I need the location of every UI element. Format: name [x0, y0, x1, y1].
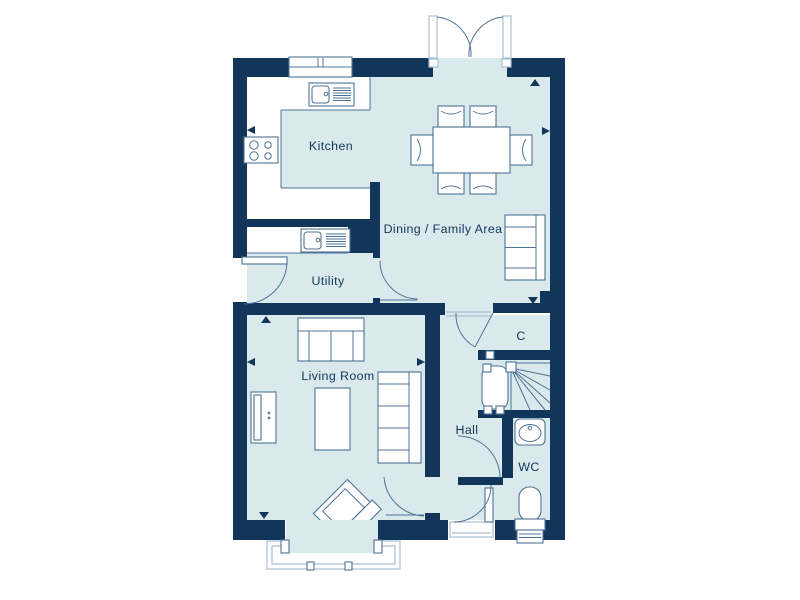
basin: [515, 419, 545, 445]
wall-stub-kitchen-dining: [370, 182, 380, 219]
room-label-living: Living Room: [301, 369, 374, 383]
kitchen-sink: [309, 83, 354, 106]
wall-bottom-mid: [378, 520, 448, 540]
coffee-table: [315, 388, 350, 450]
dining-chair: [438, 106, 464, 127]
wall-block-utility-dining: [348, 219, 380, 253]
hall-doorway-floor: [445, 303, 493, 315]
room-label-kitchen: Kitchen: [309, 139, 353, 153]
door-leaf: [458, 477, 503, 485]
wall-closet-top: [493, 303, 550, 313]
door-leaf: [242, 257, 287, 264]
wall-wc-left: [502, 417, 513, 478]
door-sill: [450, 522, 493, 537]
room-label-wc: WC: [518, 460, 539, 474]
door-jamb-top: [373, 253, 380, 258]
floorplan-page: Kitchen Dining / Family Area Utility Liv…: [0, 0, 800, 600]
french-door-recess-floor: [433, 58, 507, 77]
door-jamb-bottom: [373, 298, 380, 303]
newel-post: [506, 362, 516, 372]
door-leaf: [485, 488, 493, 522]
room-label-utility: Utility: [311, 274, 344, 288]
wall-living-right: [425, 315, 440, 477]
dining-table: [433, 127, 510, 173]
dining-sofa: [505, 215, 545, 280]
french-door-left-leaf: [429, 16, 437, 58]
utility-sink: [301, 229, 350, 252]
wall-right: [550, 58, 565, 540]
french-door-right-leaf: [503, 16, 511, 58]
floorplan-svg: Kitchen Dining / Family Area Utility Liv…: [0, 0, 800, 600]
room-label-closet: C: [516, 329, 525, 343]
dining-chair: [470, 173, 496, 194]
tv-unit: [251, 392, 276, 443]
door-post: [486, 351, 494, 359]
toilet: [515, 487, 545, 543]
dining-chair: [470, 106, 496, 127]
wall-left-lower: [233, 315, 247, 521]
dining-chair: [438, 173, 464, 194]
hob: [244, 137, 278, 163]
kitchen-window: [289, 57, 352, 77]
bay-floor: [286, 520, 378, 553]
dining-chair: [411, 135, 433, 165]
wall-utility-living: [233, 303, 445, 315]
room-label-dining: Dining / Family Area: [384, 222, 503, 236]
large-sofa: [378, 372, 421, 463]
dining-chair: [510, 135, 532, 165]
living-door-passage-floor: [425, 477, 440, 515]
wall-bottom-left: [233, 520, 285, 540]
room-label-hall: Hall: [456, 423, 479, 437]
small-sofa: [298, 318, 364, 361]
